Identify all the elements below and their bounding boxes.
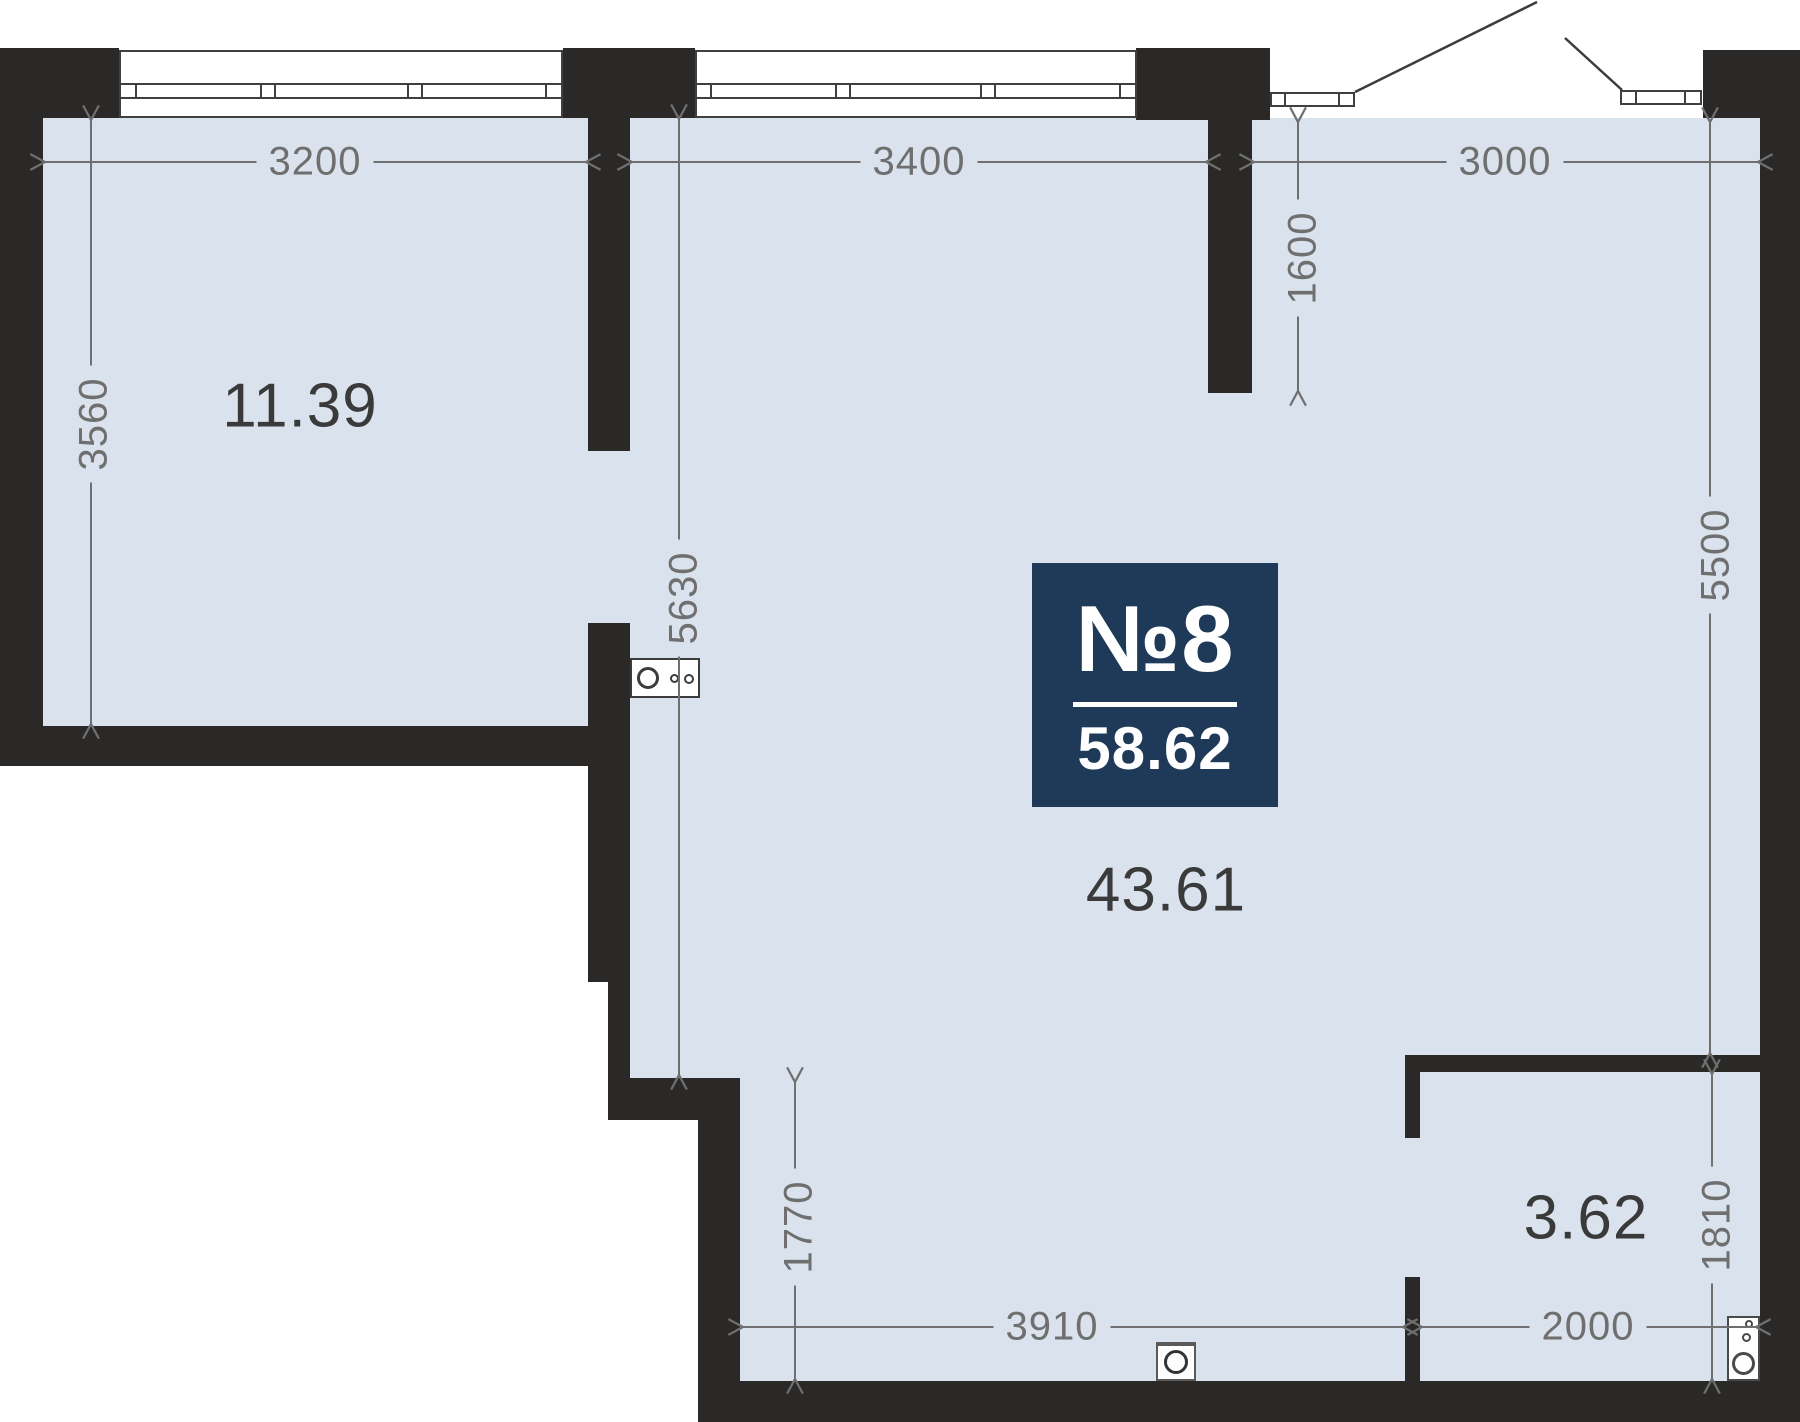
wall-partition-room1-lower — [588, 623, 630, 726]
wall-step-horizontal — [608, 1078, 740, 1120]
basin-dot — [1742, 1333, 1751, 1342]
bathroom-area-label: 3.62 — [1524, 1183, 1649, 1254]
wall-room1-bottom — [0, 726, 630, 766]
faucet-dot — [670, 674, 679, 683]
faucet-dot — [684, 674, 694, 684]
window-frame — [119, 83, 563, 99]
dim-room1-depth: 3560 — [72, 366, 117, 483]
wall-top-1 — [0, 48, 119, 118]
balcony-door-sill-right — [1620, 90, 1702, 105]
wall-ext-left-lower — [588, 766, 630, 982]
dim-bottom-width: 3910 — [994, 1305, 1111, 1350]
balcony-door-sill-left — [1270, 92, 1355, 107]
dim-bath-width: 2000 — [1530, 1305, 1647, 1350]
apartment-badge[interactable]: №8 58.62 — [1032, 563, 1278, 807]
sink-bowl — [637, 667, 659, 689]
dim-living-width: 3400 — [861, 140, 978, 185]
washer-drum — [1164, 1350, 1188, 1374]
dim-living-depth: 5630 — [662, 540, 707, 657]
wall-bathroom-stub-lower — [1405, 1277, 1420, 1381]
dim-bath-depth: 1810 — [1695, 1167, 1740, 1284]
dim-room1-width: 3200 — [257, 140, 374, 185]
basin-dot — [1745, 1320, 1753, 1328]
basin-bowl — [1732, 1352, 1755, 1375]
kitchen-sink-icon — [630, 658, 700, 698]
window-1 — [119, 50, 563, 118]
window-frame — [695, 83, 1137, 99]
wall-entry-stub — [1208, 120, 1252, 393]
wall-bottom — [698, 1381, 1800, 1422]
badge-divider — [1073, 702, 1237, 707]
balcony-door-leaves — [1355, 2, 1622, 92]
wall-bathroom-top — [1405, 1055, 1760, 1072]
wall-top-2 — [563, 48, 695, 118]
floor-plan: 3200 3400 3000 3560 5630 1600 5500 1770 … — [0, 0, 1800, 1422]
apartment-total-area: 58.62 — [1077, 719, 1232, 779]
washbasin-icon — [1727, 1316, 1760, 1381]
washing-machine-icon — [1156, 1342, 1196, 1381]
wall-lower-left-column — [698, 1120, 740, 1381]
wall-bathroom-stub-upper — [1405, 1072, 1420, 1138]
dim-hall-width: 3000 — [1447, 140, 1564, 185]
wall-top-3 — [1136, 48, 1270, 120]
wall-partition-room1-upper — [588, 118, 630, 451]
room1-area-label: 11.39 — [222, 371, 378, 442]
room1-door-gap — [588, 451, 630, 623]
dim-right-depth: 5500 — [1694, 497, 1739, 614]
wall-right — [1760, 50, 1800, 1422]
exterior-cutout — [630, 1120, 698, 1422]
window-2 — [695, 50, 1137, 118]
living-area-label: 43.61 — [1086, 855, 1246, 926]
apartment-number: №8 — [1075, 592, 1234, 686]
dim-entry-depth: 1600 — [1281, 200, 1326, 317]
dim-lower-left-depth: 1770 — [777, 1169, 822, 1286]
wall-left — [0, 48, 43, 766]
